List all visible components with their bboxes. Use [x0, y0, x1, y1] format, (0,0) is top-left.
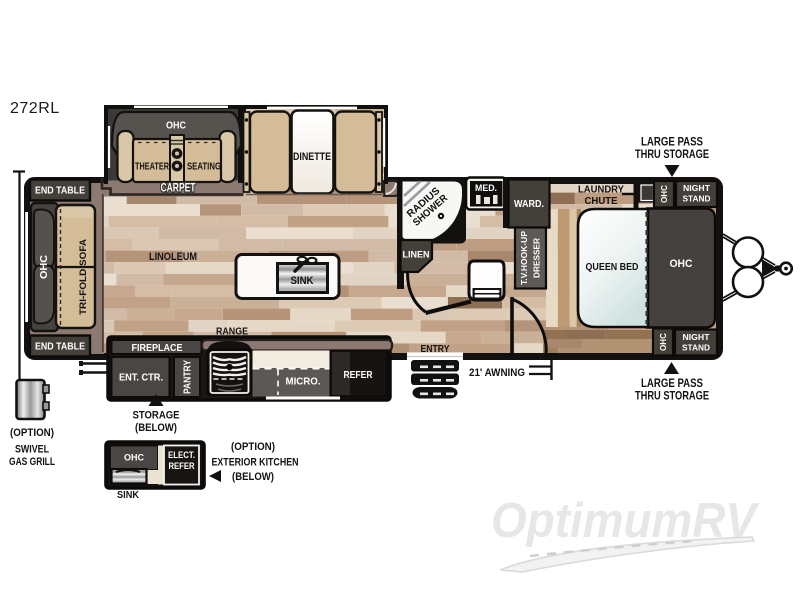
svg-text:LAUNDRY: LAUNDRY [578, 183, 624, 195]
svg-text:GAS GRILL: GAS GRILL [9, 456, 55, 468]
svg-text:DINETTE: DINETTE [293, 151, 331, 163]
svg-text:STAND: STAND [683, 194, 711, 204]
svg-text:STAND: STAND [682, 343, 710, 353]
svg-text:LINOLEUM: LINOLEUM [149, 251, 197, 263]
svg-text:WARD.: WARD. [514, 199, 544, 210]
svg-text:OHC: OHC [658, 333, 668, 351]
svg-text:OHC: OHC [124, 452, 144, 463]
svg-text:RANGE: RANGE [216, 325, 248, 337]
svg-text:END TABLE: END TABLE [35, 186, 85, 197]
svg-text:LARGE PASS: LARGE PASS [641, 137, 703, 149]
svg-text:END TABLE: END TABLE [35, 342, 85, 353]
svg-text:DRESSER: DRESSER [532, 238, 542, 278]
svg-text:SINK: SINK [117, 489, 139, 501]
svg-text:LINEN: LINEN [403, 249, 430, 260]
svg-text:CARPET: CARPET [161, 183, 196, 195]
svg-text:NIGHT: NIGHT [683, 183, 711, 193]
svg-text:(OPTION): (OPTION) [231, 441, 275, 453]
svg-text:MICRO.: MICRO. [286, 375, 321, 387]
svg-text:ELECT.: ELECT. [168, 450, 195, 460]
svg-text:(BELOW): (BELOW) [232, 471, 274, 483]
svg-text:MED.: MED. [475, 183, 497, 193]
svg-text:T.V.HOOK-UP: T.V.HOOK-UP [519, 231, 529, 285]
svg-text:TRI-FOLD SOFA: TRI-FOLD SOFA [78, 239, 89, 315]
svg-text:272RL: 272RL [10, 100, 60, 117]
svg-text:LARGE PASS: LARGE PASS [641, 378, 703, 390]
svg-text:STORAGE: STORAGE [133, 409, 180, 421]
svg-text:FIREPLACE: FIREPLACE [132, 342, 183, 354]
svg-text:SEATING: SEATING [187, 162, 221, 173]
svg-text:OHC: OHC [670, 258, 693, 270]
svg-text:THRU STORAGE: THRU STORAGE [635, 391, 709, 403]
svg-text:OHC: OHC [38, 255, 50, 279]
svg-text:EXTERIOR KITCHEN: EXTERIOR KITCHEN [212, 456, 299, 468]
svg-text:NIGHT: NIGHT [683, 332, 711, 342]
svg-text:OHC: OHC [659, 185, 669, 203]
svg-text:QUEEN BED: QUEEN BED [586, 261, 639, 273]
svg-text:(BELOW): (BELOW) [135, 422, 177, 434]
svg-text:ENT. CTR.: ENT. CTR. [119, 373, 163, 384]
svg-text:(OPTION): (OPTION) [10, 427, 54, 439]
svg-text:REFER: REFER [344, 369, 373, 381]
svg-text:SINK: SINK [291, 275, 314, 287]
svg-text:THRU STORAGE: THRU STORAGE [635, 149, 709, 161]
svg-text:THEATER: THEATER [135, 162, 170, 173]
svg-text:OHC: OHC [166, 121, 186, 132]
svg-text:21' AWNING: 21' AWNING [469, 367, 525, 379]
svg-text:PANTRY: PANTRY [183, 360, 194, 394]
svg-text:ENTRY: ENTRY [421, 344, 450, 355]
svg-text:REFER: REFER [169, 461, 195, 471]
svg-text:SWIVEL: SWIVEL [15, 443, 49, 455]
svg-text:CHUTE: CHUTE [585, 195, 618, 207]
